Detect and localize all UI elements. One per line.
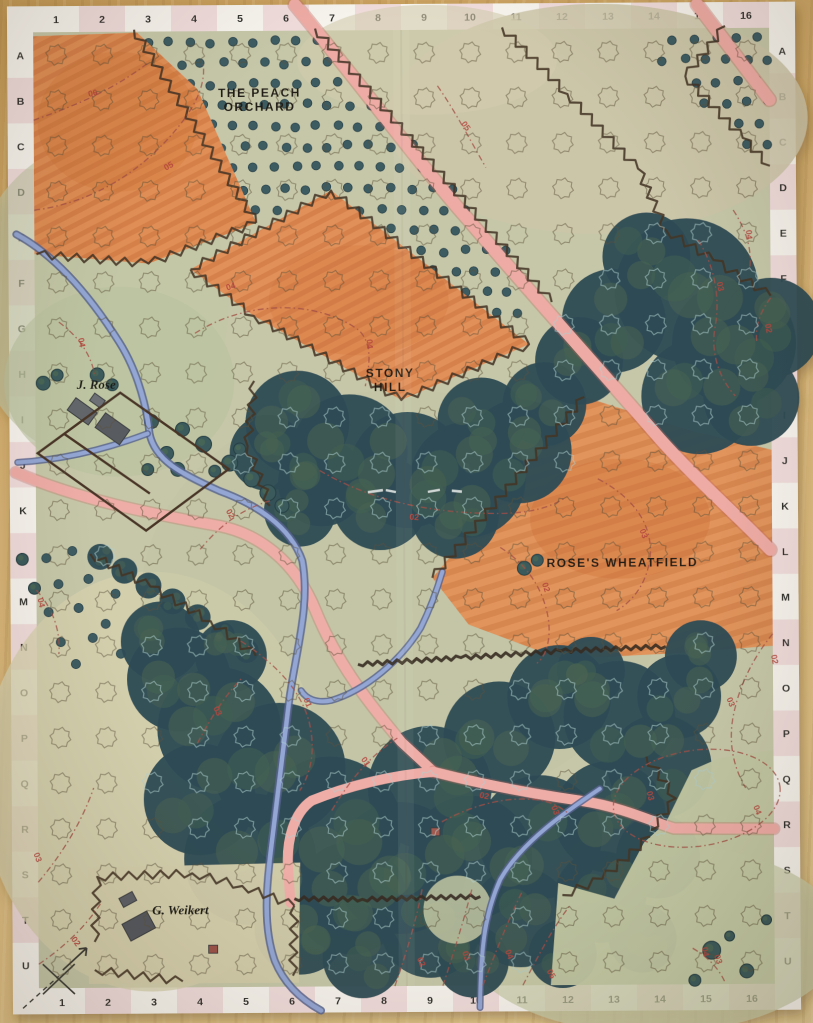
orchard-tree	[491, 268, 500, 277]
orchard-tree	[281, 184, 290, 193]
woods-canopy	[285, 489, 308, 512]
woods-canopy	[668, 272, 714, 318]
tree-highlight	[30, 584, 35, 589]
woods-canopy	[196, 758, 232, 794]
woods-blob	[159, 588, 185, 614]
orchard-tree	[291, 36, 300, 45]
woods-canopy	[215, 632, 223, 640]
woods-canopy	[647, 695, 674, 722]
row-label-left: K	[19, 505, 27, 517]
orchard-tree	[206, 39, 215, 48]
orchard-tree	[303, 144, 312, 153]
row-label-right: P	[783, 728, 790, 740]
orchard-tree	[71, 659, 80, 668]
orchard-tree	[220, 57, 229, 66]
woods-canopy	[292, 461, 320, 489]
woods-canopy	[655, 369, 692, 406]
woods-canopy	[163, 602, 171, 610]
orchard-tree	[261, 58, 270, 67]
photo-of-wargame-map: { "scene": { "description": "Hex-and-cou…	[0, 0, 813, 1023]
column-label-bottom: 6	[289, 996, 295, 1008]
woods-canopy	[469, 427, 497, 455]
orchard-tree	[343, 183, 352, 192]
orchard-tree	[206, 81, 215, 90]
orchard-tree	[271, 36, 280, 45]
orchard-tree	[346, 102, 355, 111]
column-label-top: 2	[99, 14, 105, 26]
orchard-tree	[711, 78, 720, 87]
woods-canopy	[142, 660, 175, 693]
woods-canopy	[355, 931, 381, 957]
woods-canopy	[178, 793, 214, 829]
orchard-tree	[483, 287, 492, 296]
tree-highlight	[533, 556, 538, 561]
contour-elevation-label: 04	[365, 339, 376, 350]
small-red-building	[209, 945, 218, 953]
border-corner	[13, 988, 39, 1014]
column-label-bottom: 2	[105, 997, 111, 1009]
orchard-tree	[302, 57, 311, 66]
terrain-label-roses-wheatfield: ROSE'S WHEATFIELD	[547, 555, 699, 570]
orchard-tree	[249, 121, 258, 130]
column-label-top: 4	[191, 13, 197, 25]
orchard-tree	[681, 54, 690, 63]
woods-canopy	[168, 706, 208, 746]
orchard-tree	[755, 119, 764, 128]
orchard-tree	[763, 140, 772, 149]
terrain-label-peach-orchard: THE PEACH	[218, 86, 301, 101]
orchard-tree	[667, 36, 676, 45]
orchard-tree	[452, 267, 461, 276]
orchard-tree	[101, 619, 110, 628]
tree-highlight	[198, 439, 205, 446]
orchard-tree	[657, 57, 666, 66]
orchard-tree	[248, 39, 257, 48]
orchard-tree	[378, 204, 387, 213]
tree-highlight	[224, 457, 231, 464]
row-label-right: J	[782, 455, 788, 467]
woods-canopy	[298, 826, 344, 872]
orchard-tree	[439, 248, 448, 257]
row-label-left: B	[17, 96, 25, 108]
orchard-tree	[84, 574, 93, 583]
tree-highlight	[18, 555, 23, 560]
column-label-bottom: 8	[381, 995, 387, 1007]
column-label-bottom: 5	[243, 996, 249, 1008]
column-label-bottom: 7	[335, 995, 341, 1007]
row-label-right: A	[778, 45, 786, 57]
tree-highlight	[726, 933, 731, 938]
orchard-tree	[68, 546, 77, 555]
orchard-tree	[164, 37, 173, 46]
woods-canopy	[499, 889, 531, 921]
row-label-right: M	[781, 592, 790, 604]
orchard-tree	[301, 186, 310, 195]
row-label-right: D	[779, 182, 787, 194]
orchard-tree	[54, 579, 63, 588]
row-label-right: L	[782, 546, 789, 558]
column-label-bottom: 3	[151, 997, 157, 1009]
woods-canopy	[627, 261, 655, 289]
row-label-left: C	[17, 141, 25, 153]
orchard-tree	[293, 162, 302, 171]
tree-highlight	[763, 916, 768, 921]
orchard-tree	[376, 162, 385, 171]
orchard-tree	[271, 122, 280, 131]
woods-canopy	[566, 664, 588, 686]
orchard-tree	[311, 78, 320, 87]
woods-canopy	[508, 416, 541, 449]
orchard-tree	[451, 226, 460, 235]
row-label-left: M	[19, 596, 28, 608]
woods-canopy	[301, 925, 331, 955]
row-label-right: N	[782, 637, 790, 649]
orchard-tree	[270, 163, 279, 172]
row-label-right: Q	[783, 774, 791, 786]
orchard-tree	[312, 161, 321, 170]
orchard-tree	[282, 143, 291, 152]
orchard-tree	[417, 246, 426, 255]
orchard-tree	[178, 61, 187, 70]
orchard-tree	[44, 608, 53, 617]
orchard-tree	[248, 163, 257, 172]
orchard-tree	[410, 226, 419, 235]
orchard-tree	[461, 245, 470, 254]
column-label-top: 6	[283, 13, 289, 25]
tree-highlight	[53, 371, 58, 376]
row-label-left: A	[16, 50, 24, 62]
orchard-tree	[722, 99, 731, 108]
woods-canopy	[435, 511, 463, 539]
column-label-top: 1	[53, 14, 59, 26]
tree-highlight	[211, 467, 216, 472]
map-sheet: 1122334455667788991010111112121313141415…	[0, 1, 813, 1023]
column-label-top: 16	[740, 10, 752, 22]
column-label-top: 3	[145, 14, 151, 26]
tree-highlight	[246, 473, 253, 480]
orchard-tree	[419, 206, 428, 215]
woods-canopy	[539, 399, 566, 426]
orchard-tree	[261, 185, 270, 194]
terrain-label-peach-orchard: ORCHARD	[224, 100, 296, 114]
orchard-tree	[355, 161, 364, 170]
orchard-tree	[74, 603, 83, 612]
tree-highlight	[235, 445, 240, 450]
orchard-tree	[502, 288, 511, 297]
woods-blob	[135, 572, 161, 598]
orchard-tree	[334, 121, 343, 130]
orchard-tree	[753, 33, 762, 42]
orchard-tree	[333, 77, 342, 86]
contour-elevation-label: 04	[744, 229, 755, 240]
farm-label-g-weikert: G. Weikert	[152, 902, 209, 917]
orchard-tree	[111, 589, 120, 598]
orchard-tree	[734, 76, 743, 85]
orchard-tree	[763, 56, 772, 65]
woods-canopy	[751, 388, 782, 419]
orchard-tree	[353, 123, 362, 132]
orchard-tree	[303, 99, 312, 108]
tree-highlight	[144, 465, 149, 470]
column-label-top: 5	[237, 13, 243, 25]
row-label-right: E	[780, 228, 787, 240]
orchard-tree	[734, 119, 743, 128]
orchard-tree	[291, 123, 300, 132]
woods-canopy	[493, 458, 526, 491]
border-corner	[769, 2, 795, 28]
orchard-tree	[258, 141, 267, 150]
wargame-map-photo: 1122334455667788991010111112121313141415…	[0, 0, 813, 1023]
orchard-tree	[88, 633, 97, 642]
border-corner	[7, 6, 33, 32]
row-label-right: K	[781, 501, 789, 513]
orchard-tree	[273, 206, 282, 215]
woods-canopy	[614, 227, 642, 255]
orchard-tree	[364, 140, 373, 149]
orchard-tree	[311, 121, 320, 130]
orchard-tree	[334, 161, 343, 170]
orchard-tree	[228, 121, 237, 130]
row-label-left: U	[22, 961, 30, 973]
farm-label-j-rose: J. Rose	[76, 377, 116, 392]
woods-canopy	[595, 323, 628, 356]
row-label-right: O	[782, 683, 790, 695]
woods-canopy	[421, 450, 458, 487]
orchard-tree	[343, 140, 352, 149]
column-label-bottom: 9	[427, 995, 433, 1007]
column-label-bottom: 1	[59, 997, 65, 1009]
orchard-tree	[439, 206, 448, 215]
woods-canopy	[287, 385, 320, 418]
column-label-bottom: 4	[197, 996, 203, 1008]
tree-highlight	[38, 378, 44, 384]
tree-highlight	[691, 976, 696, 981]
row-label-right: R	[783, 819, 791, 831]
tree-highlight	[178, 424, 184, 430]
